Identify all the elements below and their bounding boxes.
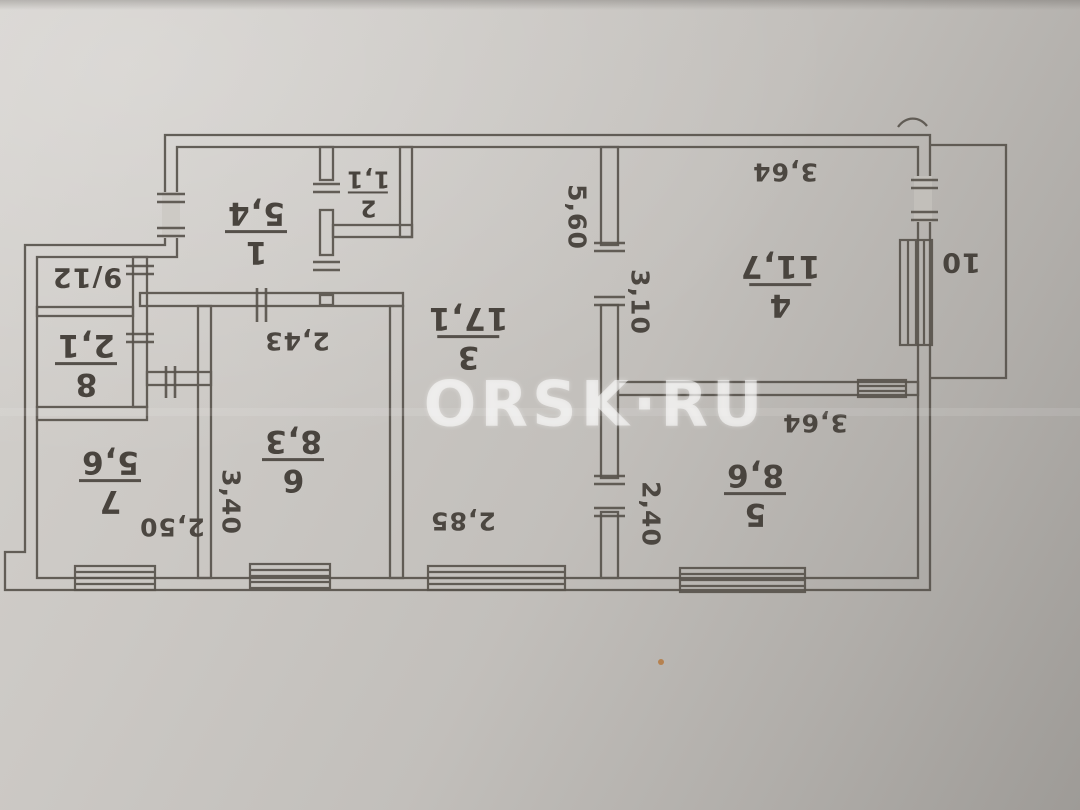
- room-3-label: 3 17,1: [428, 302, 509, 372]
- orsk-ru-watermark: ORSK·RU: [424, 368, 767, 441]
- dim-room4-3-10: 3,10: [626, 269, 655, 335]
- room-5-number: 5: [724, 498, 786, 530]
- room-5-area: 8,6: [724, 459, 786, 491]
- fraction-bar: [348, 191, 388, 193]
- room-1-area: 5,4: [225, 197, 287, 229]
- dim-room4-3-64: 3,64: [752, 158, 818, 187]
- room-1-number: 1: [225, 236, 287, 268]
- dim-room3-2-85: 2,85: [430, 507, 496, 536]
- room-6-label: 6 8,3: [262, 425, 324, 495]
- room-8-number: 8: [55, 368, 117, 400]
- dim-room3-5-60: 5,60: [563, 184, 592, 250]
- room-1-label: 1 5,4: [225, 197, 287, 267]
- dim-room5-2-40: 2,40: [637, 481, 666, 547]
- dim-room6-3-40: 3,40: [217, 469, 246, 535]
- dim-room7-2-50: 2,50: [139, 513, 205, 542]
- dim-room5-3-64: 3,64: [782, 409, 848, 438]
- room-4-area: 11,7: [740, 250, 821, 282]
- dim-room6-2-43: 2,43: [264, 327, 330, 356]
- room-6-number: 6: [262, 464, 324, 496]
- paper-speck: [658, 659, 664, 665]
- room-6-area: 8,3: [262, 425, 324, 457]
- room-2-label: 2 1,1: [346, 166, 390, 219]
- room-7-number: 7: [79, 485, 141, 517]
- closet-9-12-label: 9/12: [52, 262, 122, 293]
- room-4-number: 4: [740, 289, 821, 321]
- room-2-area: 1,1: [346, 166, 390, 189]
- floor-plan-photo: 1 5,4 2 1,1 3 17,1 4 11,7 5 8,6 6 8,3 7 …: [0, 0, 1080, 810]
- room-7-area: 5,6: [79, 446, 141, 478]
- room-4-label: 4 11,7: [740, 250, 821, 320]
- room-8-area: 2,1: [55, 329, 117, 361]
- room-3-area: 17,1: [428, 302, 509, 334]
- room-5-label: 5 8,6: [724, 459, 786, 529]
- room-2-number: 2: [346, 195, 390, 218]
- room-8-label: 8 2,1: [55, 329, 117, 399]
- room-7-label: 7 5,6: [79, 446, 141, 516]
- balcony-10-label: 10: [941, 247, 981, 278]
